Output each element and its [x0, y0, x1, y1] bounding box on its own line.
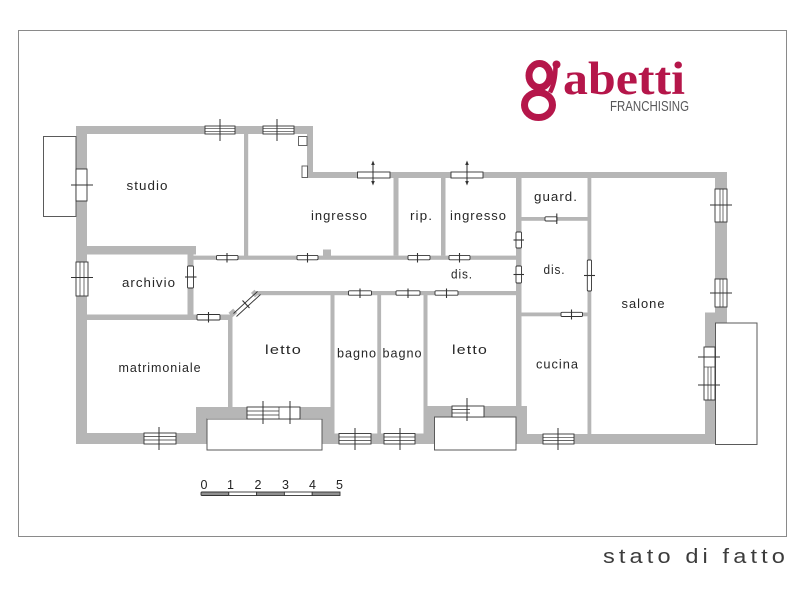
svg-text:1: 1 [227, 478, 234, 492]
svg-text:guard.: guard. [534, 189, 578, 204]
svg-text:salone: salone [622, 296, 666, 311]
svg-text:2: 2 [255, 478, 262, 492]
svg-text:ingresso: ingresso [450, 208, 507, 223]
svg-text:cucina: cucina [536, 357, 579, 372]
svg-text:ingresso: ingresso [311, 208, 368, 223]
svg-text:matrimoniale: matrimoniale [119, 360, 202, 375]
svg-text:letto: letto [265, 342, 302, 357]
svg-text:3: 3 [282, 478, 289, 492]
svg-text:bagno: bagno [383, 346, 423, 361]
svg-text:letto: letto [452, 342, 488, 357]
svg-text:stato di fatto: stato di fatto [603, 546, 789, 568]
svg-text:archivio: archivio [122, 275, 176, 290]
svg-text:bagno: bagno [337, 346, 377, 361]
svg-text:0: 0 [201, 478, 208, 492]
svg-text:dis.: dis. [544, 262, 566, 277]
svg-text:dis.: dis. [451, 267, 473, 282]
svg-text:studio: studio [127, 178, 169, 193]
svg-text:FRANCHISING: FRANCHISING [610, 98, 689, 115]
svg-text:5: 5 [336, 478, 343, 492]
svg-text:4: 4 [309, 478, 316, 492]
svg-text:rip.: rip. [410, 208, 433, 223]
